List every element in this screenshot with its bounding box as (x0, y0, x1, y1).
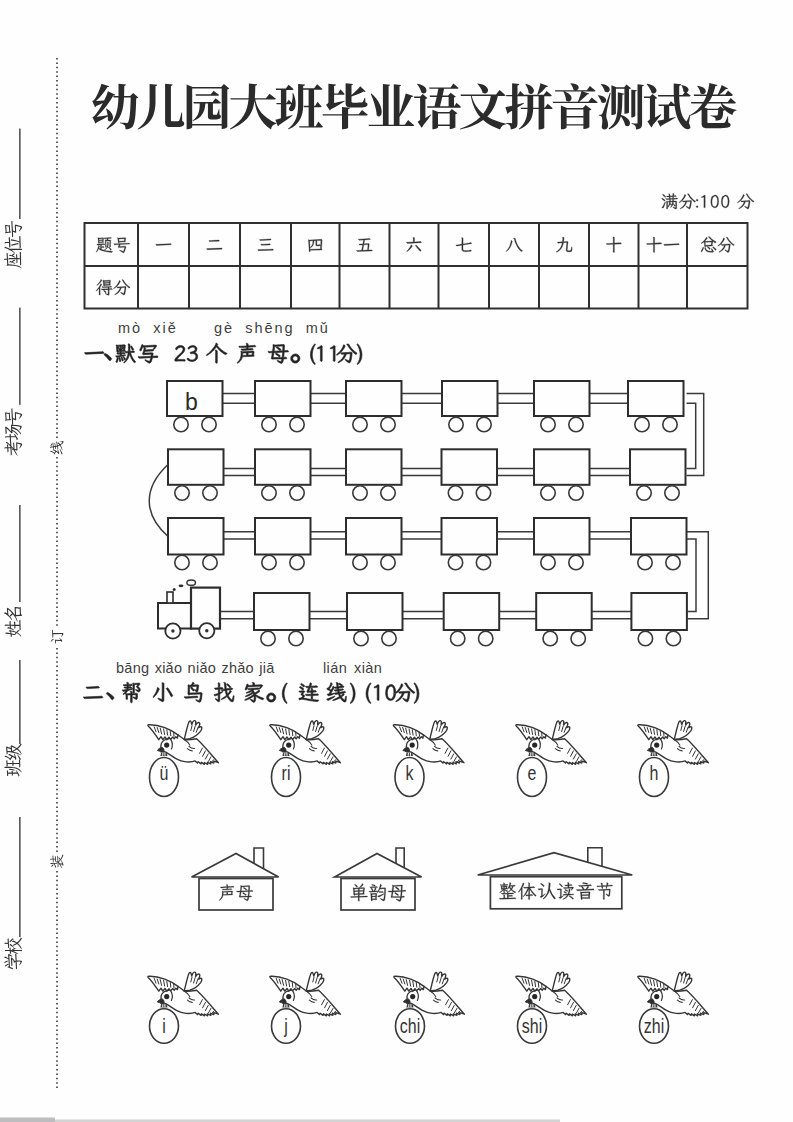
svg-text:chi: chi (400, 1014, 420, 1038)
svg-text:mò xiě: mò xiě (118, 320, 178, 336)
svg-text:shi: shi (522, 1014, 542, 1038)
svg-text:bāng xiǎo niǎo zhǎo jiā: bāng xiǎo niǎo zhǎo jiā (116, 660, 275, 676)
svg-text:k: k (406, 761, 415, 785)
svg-text:b: b (185, 389, 198, 415)
svg-text:i: i (162, 1014, 166, 1038)
svg-text:lián xiàn: lián xiàn (323, 660, 382, 676)
svg-text:h: h (650, 761, 659, 785)
svg-text:e: e (528, 761, 537, 785)
svg-text:zhi: zhi (644, 1014, 664, 1038)
svg-text:j: j (283, 1014, 287, 1038)
svg-text:gè shēng mǔ: gè shēng mǔ (214, 320, 330, 336)
svg-text:ü: ü (160, 761, 169, 785)
svg-text:ri: ri (282, 761, 291, 785)
